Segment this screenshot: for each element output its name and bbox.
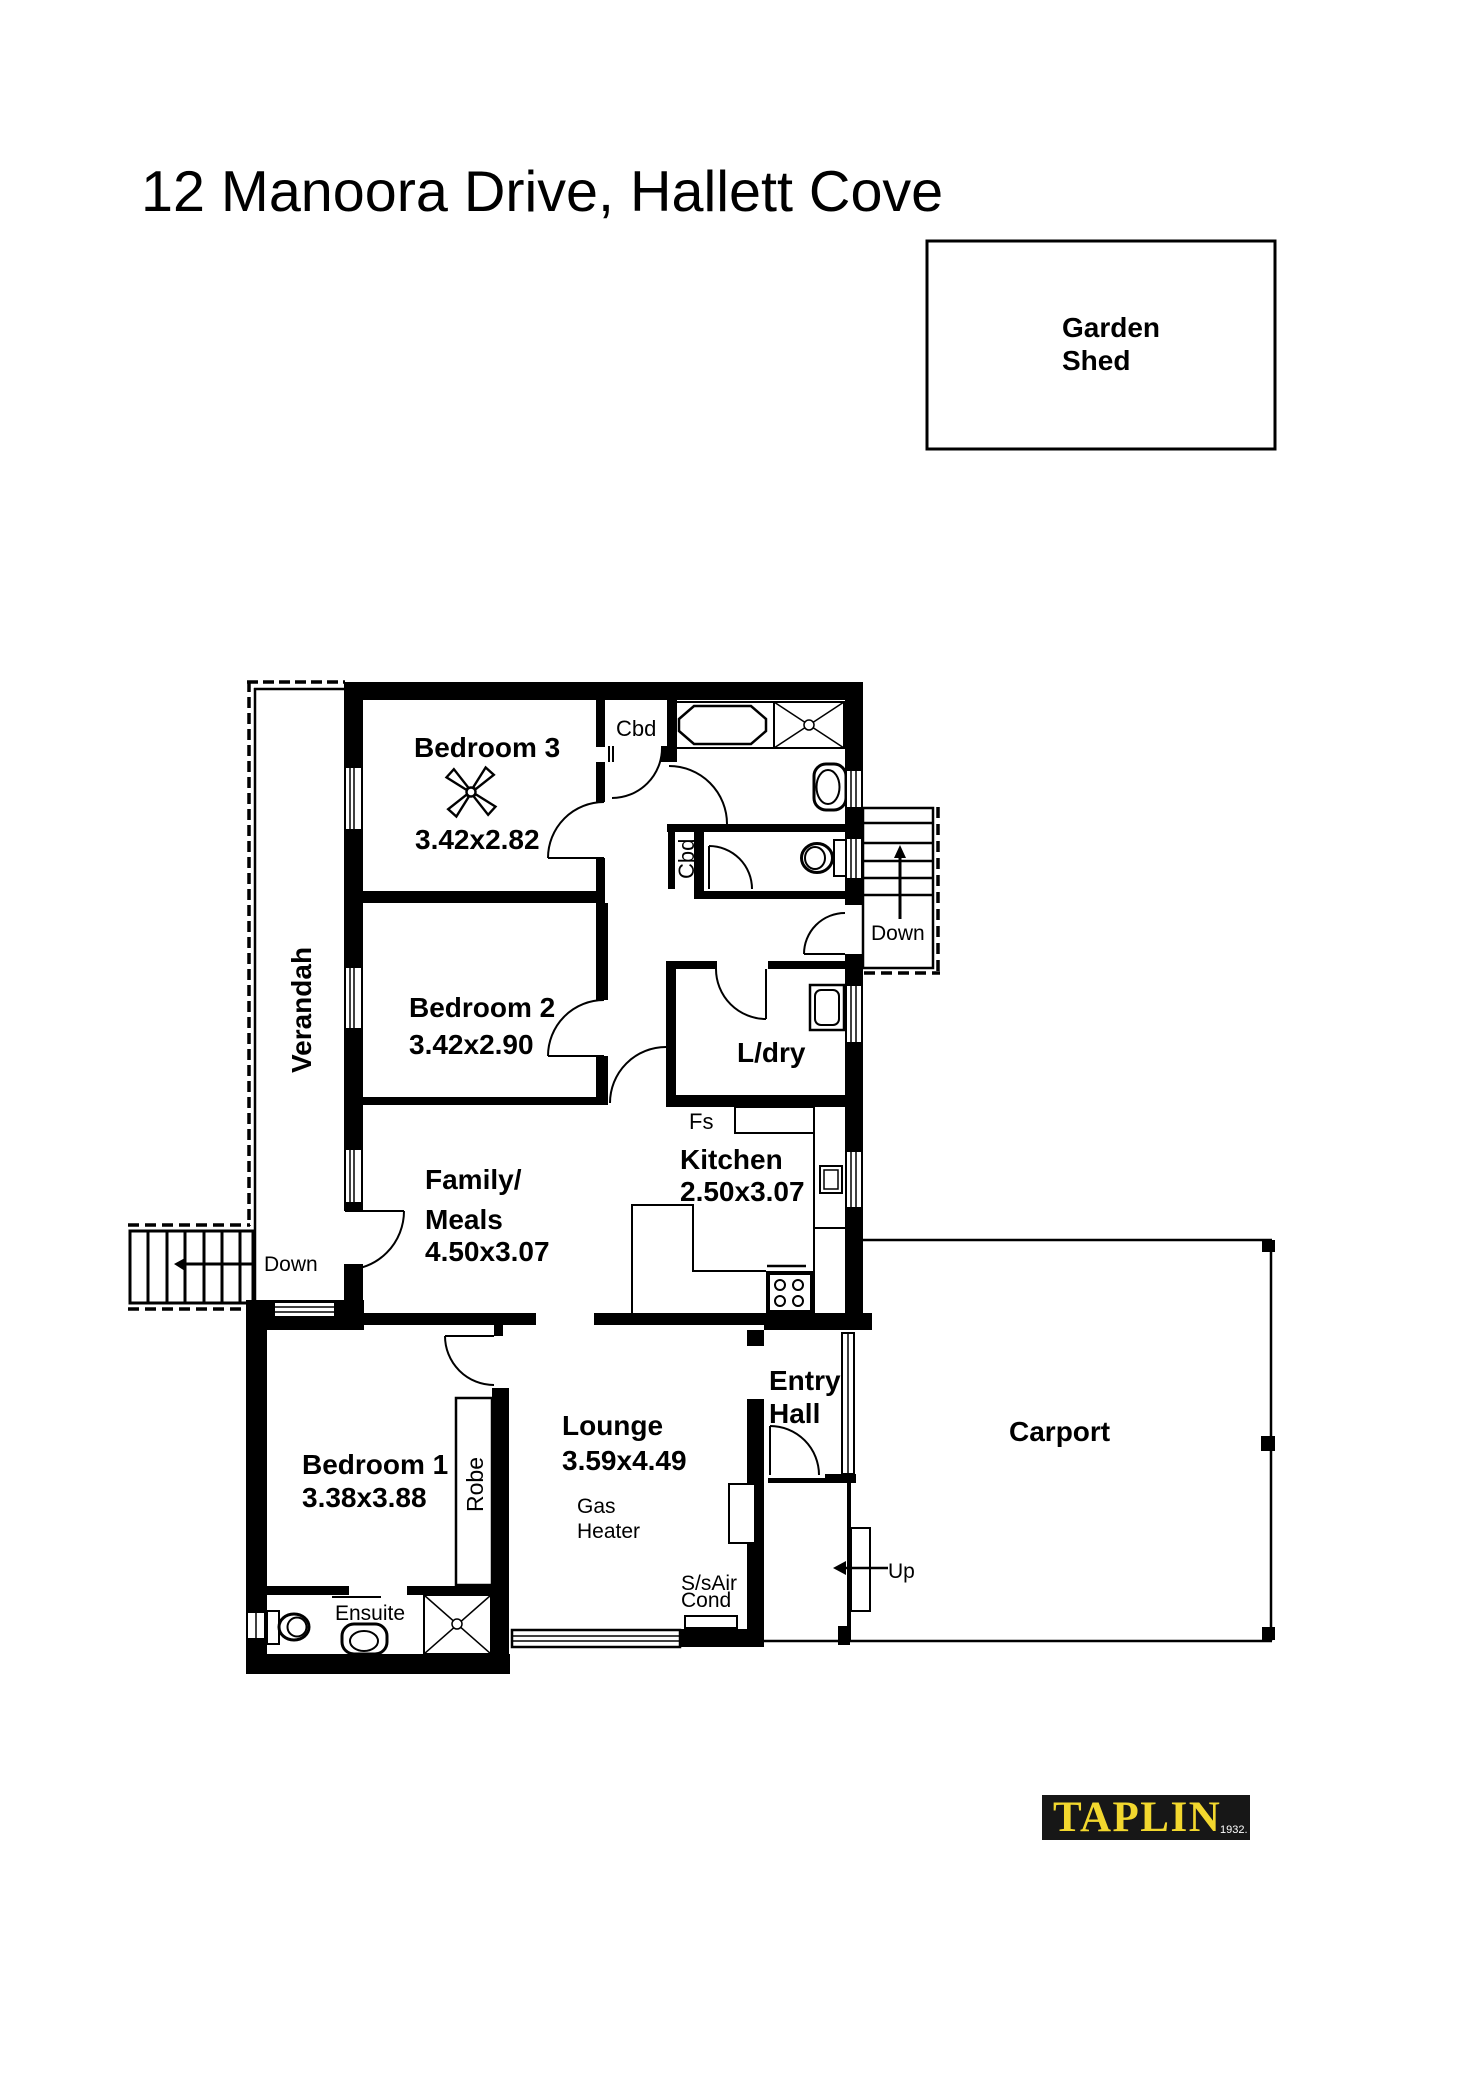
svg-text:Verandah: Verandah [286, 947, 317, 1073]
svg-text:Bedroom 3: Bedroom 3 [414, 732, 560, 763]
svg-text:3.38x3.88: 3.38x3.88 [302, 1482, 427, 1513]
svg-text:Family/: Family/ [425, 1164, 522, 1195]
svg-text:Cbd: Cbd [674, 839, 699, 879]
svg-text:3.42x2.90: 3.42x2.90 [409, 1029, 534, 1060]
svg-text:12 Manoora Drive, Hallett Cove: 12 Manoora Drive, Hallett Cove [141, 160, 943, 224]
svg-text:Carport: Carport [1009, 1416, 1110, 1447]
svg-text:Lounge: Lounge [562, 1410, 663, 1441]
svg-text:Shed: Shed [1062, 345, 1130, 376]
svg-text:Bedroom 1: Bedroom 1 [302, 1449, 448, 1480]
svg-text:2.50x3.07: 2.50x3.07 [680, 1176, 805, 1207]
svg-text:3.59x4.49: 3.59x4.49 [562, 1445, 687, 1476]
svg-text:Kitchen: Kitchen [680, 1144, 783, 1175]
svg-text:Fs: Fs [689, 1109, 713, 1134]
svg-text:TAPLIN: TAPLIN [1053, 1794, 1221, 1841]
svg-text:Robe: Robe [462, 1457, 488, 1512]
svg-text:1932.: 1932. [1220, 1824, 1248, 1836]
svg-text:Bedroom 2: Bedroom 2 [409, 992, 555, 1023]
svg-text:Gas: Gas [577, 1495, 616, 1518]
svg-text:3.42x2.82: 3.42x2.82 [415, 824, 540, 855]
svg-text:Down: Down [264, 1253, 318, 1276]
svg-text:Cbd: Cbd [616, 716, 656, 741]
svg-text:Cond: Cond [681, 1589, 731, 1612]
svg-text:Down: Down [871, 922, 925, 945]
svg-text:Meals: Meals [425, 1204, 503, 1235]
svg-text:4.50x3.07: 4.50x3.07 [425, 1236, 550, 1267]
svg-text:Garden: Garden [1062, 312, 1160, 343]
svg-text:Ensuite: Ensuite [335, 1602, 405, 1625]
svg-text:Hall: Hall [769, 1398, 820, 1429]
svg-text:Heater: Heater [577, 1520, 640, 1543]
svg-text:Entry: Entry [769, 1365, 841, 1396]
svg-text:L/dry: L/dry [737, 1037, 806, 1068]
svg-text:Up: Up [888, 1560, 915, 1583]
